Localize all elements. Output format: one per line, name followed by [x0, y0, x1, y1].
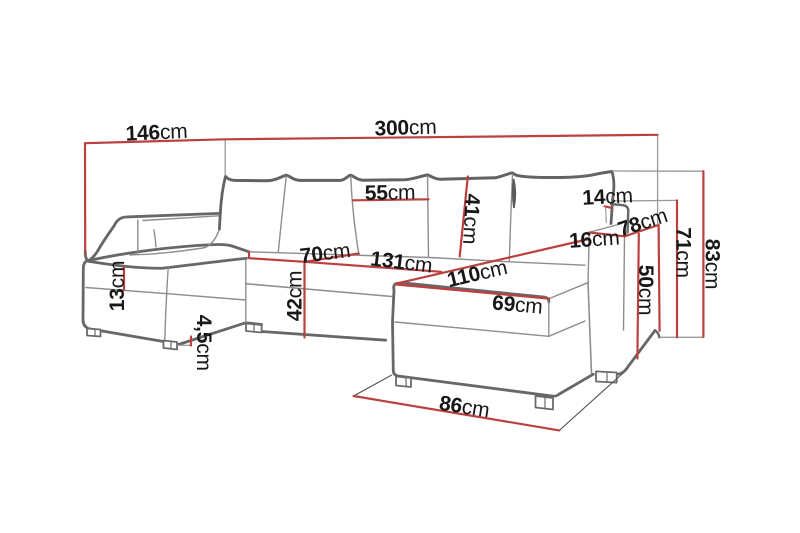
svg-text:41cm: 41cm: [458, 193, 484, 245]
svg-text:146cm: 146cm: [125, 120, 188, 146]
svg-text:14cm: 14cm: [582, 184, 634, 210]
svg-text:55cm: 55cm: [365, 181, 416, 205]
svg-text:300cm: 300cm: [374, 116, 437, 141]
svg-text:83cm: 83cm: [700, 239, 723, 290]
svg-text:16cm: 16cm: [568, 226, 620, 252]
svg-text:13cm: 13cm: [106, 261, 129, 312]
svg-text:50cm: 50cm: [634, 265, 657, 316]
svg-text:4,5cm: 4,5cm: [192, 315, 215, 371]
svg-text:69cm: 69cm: [491, 291, 543, 318]
svg-text:42cm: 42cm: [284, 271, 307, 322]
svg-text:71cm: 71cm: [671, 227, 694, 278]
